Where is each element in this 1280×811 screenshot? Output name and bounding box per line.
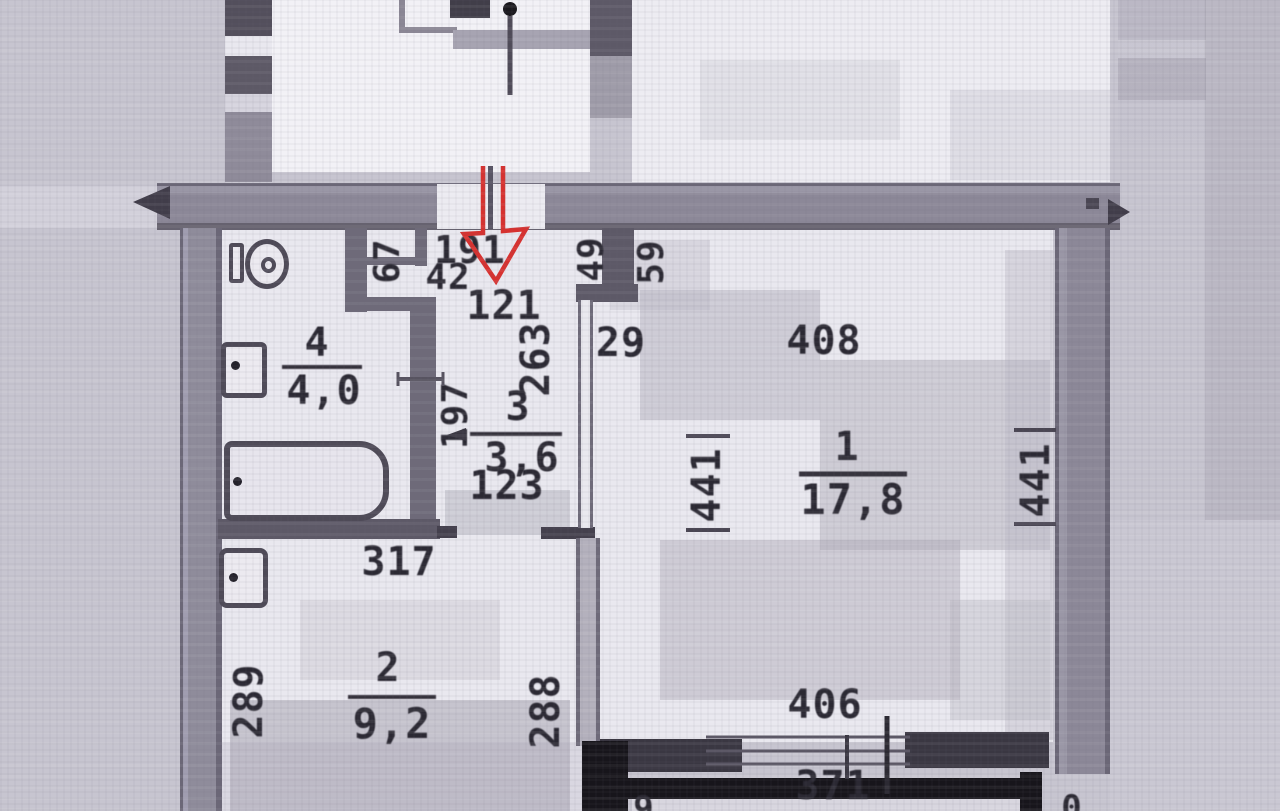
stair-landing bbox=[272, 0, 590, 172]
dim-197: 197 bbox=[438, 381, 474, 449]
balcony-outline-right bbox=[1020, 772, 1042, 811]
kitchen-room1-partition bbox=[576, 538, 600, 746]
bathtub-drain-icon bbox=[233, 477, 242, 486]
dim-59: 59 bbox=[634, 239, 670, 284]
scan-noise bbox=[1205, 0, 1280, 520]
dim-29: 29 bbox=[596, 323, 646, 363]
dim-317: 317 bbox=[361, 542, 436, 582]
kitchen-floor-bottom bbox=[222, 742, 582, 811]
right-external-wall bbox=[1055, 228, 1110, 774]
toilet-tank-icon bbox=[229, 243, 244, 283]
dim-441-right: 441 bbox=[1016, 442, 1056, 517]
room-4-area: 4,0 bbox=[286, 371, 361, 411]
upper-right-wall-patches bbox=[1118, 0, 1206, 142]
wall-ghost-left bbox=[0, 186, 157, 228]
scan-noise bbox=[1110, 520, 1280, 811]
room-3-number: 3 bbox=[505, 387, 530, 427]
dim-cut-left: 9 bbox=[633, 792, 654, 811]
bottom-black-pier bbox=[582, 741, 628, 811]
toilet-bowl-inner-icon bbox=[261, 257, 276, 273]
stair-wall-stub bbox=[450, 0, 490, 18]
room-2-number: 2 bbox=[375, 648, 400, 688]
floor-plan-scan: 67 191 42 121 49 59 263 29 197 123 317 2… bbox=[0, 0, 1280, 811]
upper-right-area bbox=[632, 0, 1110, 182]
stair-right-wall-bottom bbox=[590, 56, 632, 118]
room-2-area: 9,2 bbox=[353, 703, 432, 745]
dim-42: 42 bbox=[425, 260, 470, 296]
stair-rail-horizontal bbox=[399, 27, 457, 33]
dim-441-left: 441 bbox=[687, 447, 727, 522]
door-jamb-left bbox=[437, 526, 457, 538]
entrance-door-leaf bbox=[488, 166, 493, 229]
dim-cut-right: 0 bbox=[1061, 791, 1082, 811]
dim-49: 49 bbox=[574, 236, 610, 281]
dim-121: 121 bbox=[466, 286, 541, 326]
bottom-wall-right-segment bbox=[905, 732, 1049, 768]
bathroom-right-wall bbox=[410, 297, 436, 528]
dim-408: 408 bbox=[786, 321, 861, 361]
washbasin-icon bbox=[221, 342, 267, 398]
room-4-number: 4 bbox=[304, 323, 329, 363]
dim-371: 371 bbox=[795, 766, 870, 806]
stair-right-wall-top bbox=[590, 0, 632, 56]
dim-406: 406 bbox=[787, 685, 862, 725]
dim-289: 289 bbox=[229, 663, 269, 738]
dim-67: 67 bbox=[370, 238, 406, 283]
kitchen-sink-icon bbox=[219, 548, 268, 608]
dim-288: 288 bbox=[526, 673, 566, 748]
room-3-area: 3,6 bbox=[484, 438, 559, 478]
kitchen-sink-drain-icon bbox=[229, 573, 238, 582]
room-1-area: 17,8 bbox=[800, 479, 905, 521]
hall-room1-partition bbox=[578, 300, 593, 528]
stairwell-left-wall bbox=[225, 0, 272, 182]
room-1-number: 1 bbox=[834, 427, 859, 467]
bathtub-icon bbox=[224, 441, 389, 521]
bathroom-bottom-wall bbox=[218, 519, 440, 539]
washbasin-drain-icon bbox=[231, 361, 240, 370]
left-external-wall bbox=[180, 228, 222, 811]
top-external-wall bbox=[157, 183, 1120, 230]
stair-rail-vertical bbox=[399, 0, 405, 30]
